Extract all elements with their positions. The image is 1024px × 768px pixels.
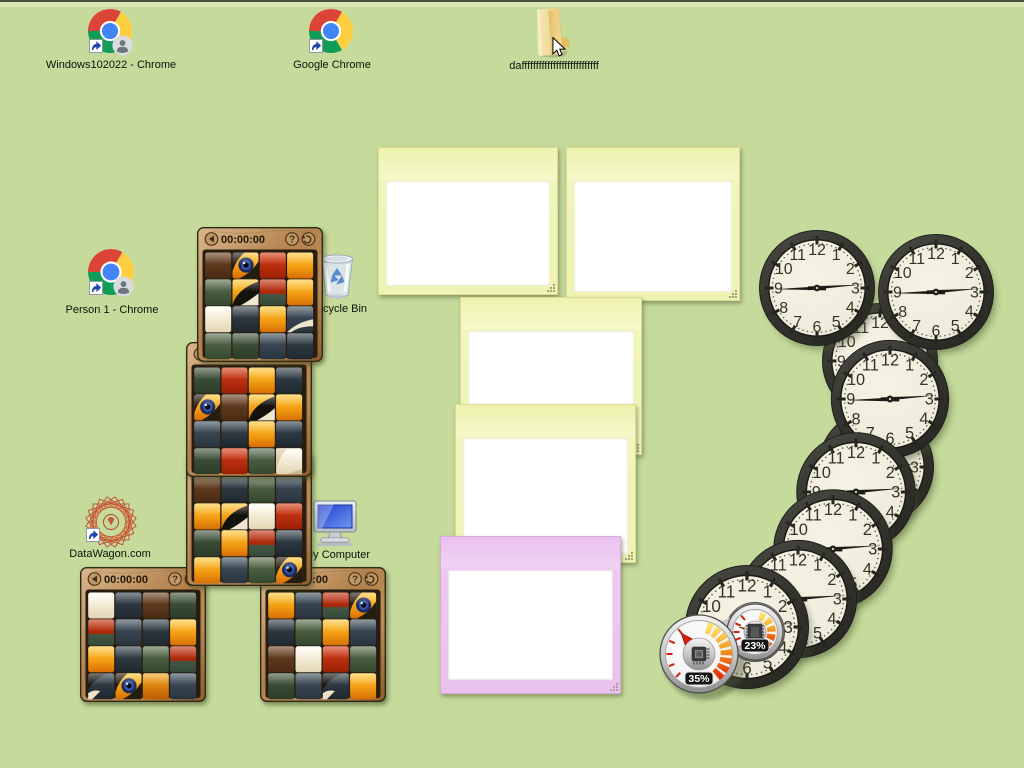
- svg-text:?: ?: [289, 235, 295, 246]
- svg-text:00:00:00: 00:00:00: [104, 574, 148, 586]
- svg-text:00:00:00: 00:00:00: [221, 234, 265, 246]
- svg-text:35%: 35%: [688, 673, 710, 685]
- svg-text:23%: 23%: [744, 640, 766, 652]
- svg-text:?: ?: [352, 575, 358, 586]
- svg-text:?: ?: [172, 575, 178, 586]
